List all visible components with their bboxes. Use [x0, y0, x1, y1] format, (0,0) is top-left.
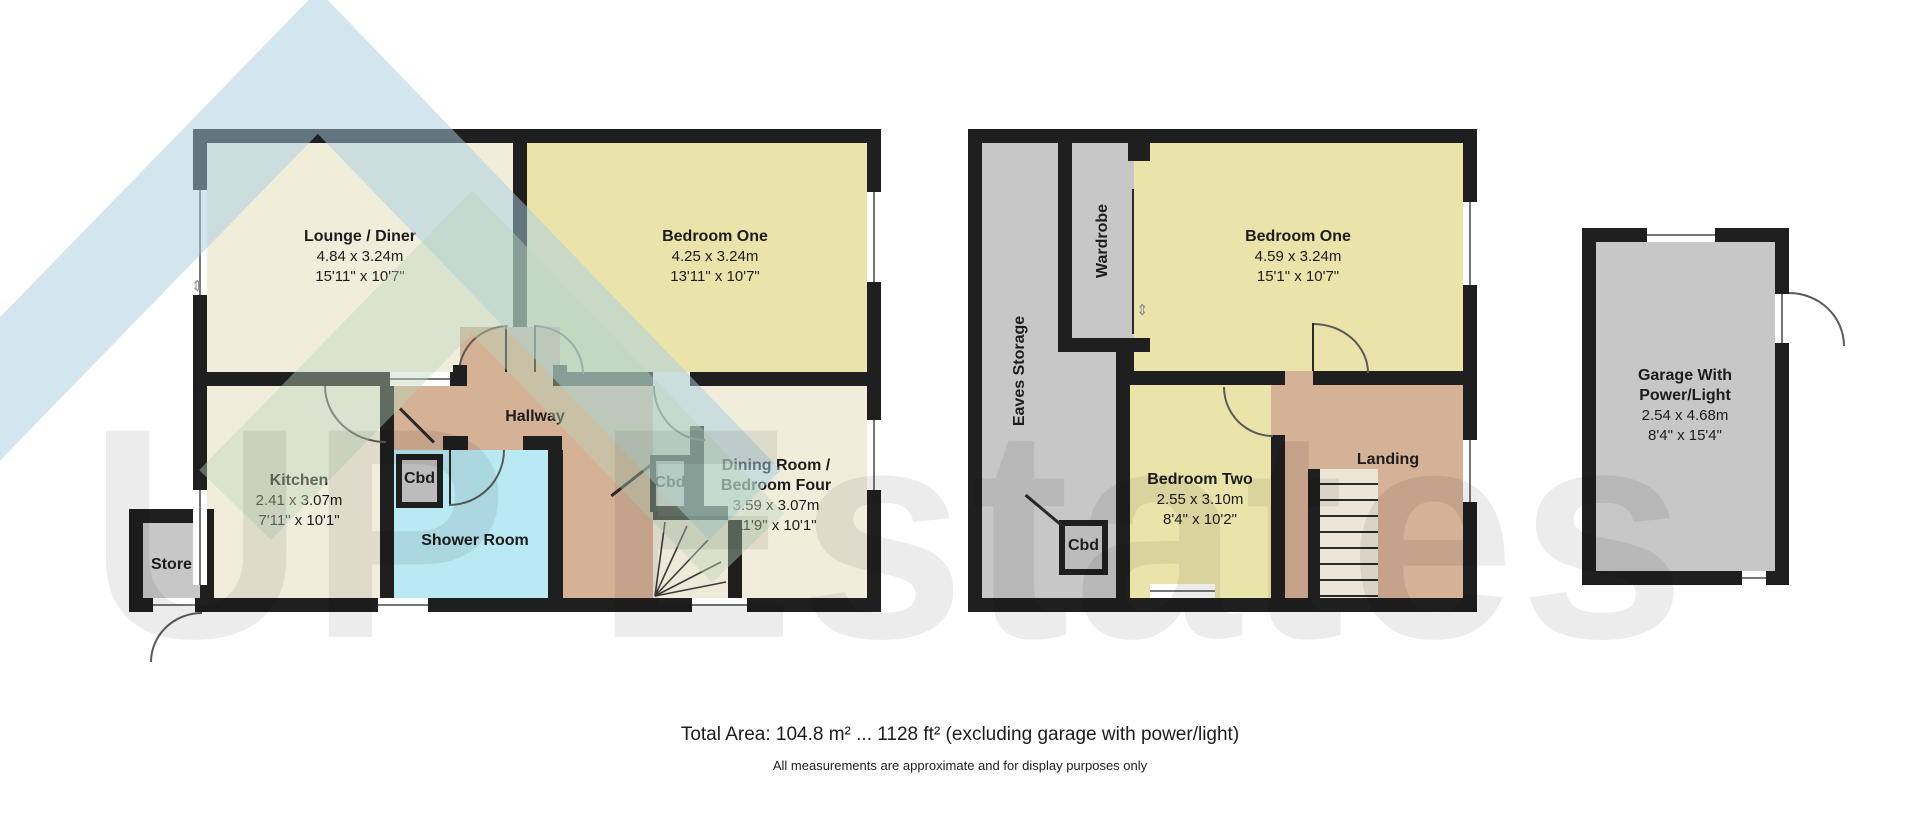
window-landing [1463, 440, 1477, 502]
door-leaf-lounge [505, 325, 507, 372]
label-eaves-storage: Eaves Storage [982, 143, 1058, 598]
wall-shower-top-left [443, 436, 468, 450]
ground-floor-plan: Lounge / Diner 4.84 x 3.24m 15'11" x 10'… [193, 129, 881, 612]
label-cbd1: Cbd [396, 469, 443, 489]
floorplan-page: Lounge / Diner 4.84 x 3.24m 15'11" x 10'… [0, 0, 1920, 832]
label-cbd-first: Cbd [1059, 536, 1108, 556]
bedroom-one-door-gap [1285, 371, 1313, 385]
door-arc-store [150, 612, 202, 662]
window-bedroom-one-first [1463, 202, 1477, 285]
footer-total-area: Total Area: 104.8 m² ... 1128 ft² (exclu… [0, 724, 1920, 746]
window-bedroom-right [867, 192, 881, 282]
label-bedroom-two: Bedroom Two 2.55 x 3.10m 8'4" x 10'2" [1110, 470, 1290, 530]
wall-stairs-left-first [1308, 469, 1320, 598]
door-arc-garage [1789, 292, 1845, 346]
wall-shower-right [548, 436, 562, 598]
wall-shower-top-right [523, 436, 548, 450]
door-leaf-bedroom-one-first [1312, 323, 1314, 371]
door-leaf-bedroom-one-ground [534, 325, 536, 372]
label-lounge: Lounge / Diner 4.84 x 3.24m 15'11" x 10'… [240, 227, 480, 287]
window-bottom-dining [692, 598, 747, 612]
first-floor-plan: Eaves Storage Wardrobe Bedroom One 4.59 … [968, 129, 1477, 612]
label-hallway: Hallway [455, 407, 615, 427]
garage-door-opening [1775, 294, 1789, 343]
label-shower: Shower Room [395, 531, 555, 551]
hinge-stub-left [453, 365, 467, 386]
room-imperial: 15'11" x 10'7" [240, 267, 480, 287]
wardrobe-slider-arrow-icon: ⇕ [1136, 301, 1149, 319]
label-wardrobe: Wardrobe [1072, 143, 1134, 338]
label-store: Store [135, 555, 208, 575]
footer-disclaimer: All measurements are approximate and for… [0, 758, 1920, 773]
store-door-opening [153, 598, 195, 612]
wall-bedroom-one-bottom-right [1313, 371, 1463, 385]
hall-gap [460, 372, 560, 386]
label-bedroom-one-first: Bedroom One 4.59 x 3.24m 15'1" x 10'7" [1178, 227, 1418, 287]
door-leaf-shower [449, 450, 451, 504]
bedtwo-door-gap [1271, 385, 1285, 435]
stairs-first [1320, 469, 1378, 598]
wall-lounge-bedroom [513, 143, 527, 327]
window-garage-top [1647, 228, 1715, 242]
opening-arrow-icon: ⇕ [191, 277, 204, 295]
window-garage-bottom [1742, 571, 1766, 585]
room-metric: 4.84 x 3.24m [240, 247, 480, 267]
window-bedroom-two [1150, 584, 1215, 598]
label-garage: Garage With Power/Light 2.54 x 4.68m 8'4… [1595, 366, 1775, 446]
label-kitchen: Kitchen 2.41 x 3.07m 7'11" x 10'1" [209, 471, 389, 531]
label-dining: Dining Room / Bedroom Four 3.59 x 3.07m … [686, 456, 866, 536]
label-landing: Landing [1318, 450, 1458, 470]
lounge-opening [390, 372, 450, 386]
room-name: Lounge / Diner [240, 227, 480, 247]
label-bedroom-one-ground: Bedroom One 4.25 x 3.24m 13'11" x 10'7" [595, 227, 835, 287]
dining-door-gap [653, 372, 690, 386]
garage-plan: Garage With Power/Light 2.54 x 4.68m 8'4… [1582, 228, 1789, 585]
wall-eaves-wardrobe [1058, 143, 1072, 352]
wall-below-wardrobe [1058, 338, 1150, 352]
wall-bedroom-one-bottom-left [1116, 371, 1285, 385]
hinge-stub-right [553, 365, 567, 386]
window-dining-right [867, 420, 881, 490]
window-bottom-shower [378, 598, 428, 612]
